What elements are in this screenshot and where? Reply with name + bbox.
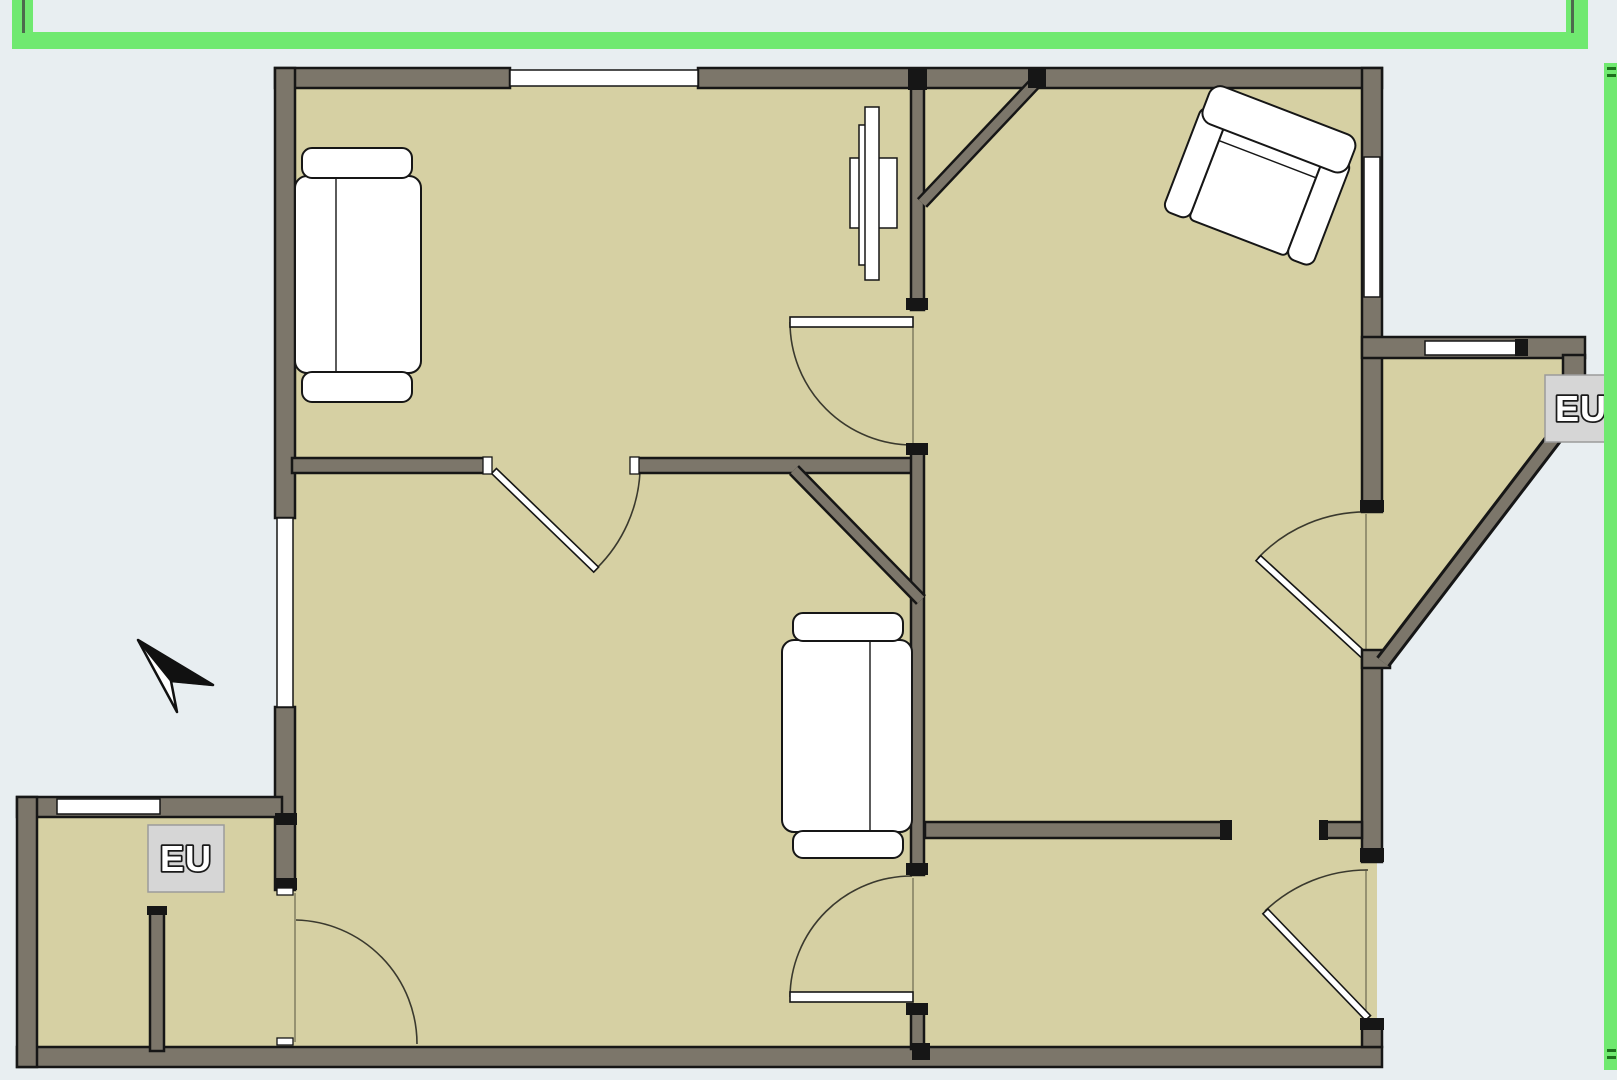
- wall-segment[interactable]: [275, 68, 510, 88]
- selection-top-bar[interactable]: [12, 32, 1588, 49]
- selection-right-bar[interactable]: [1604, 63, 1617, 1070]
- wall-segment[interactable]: [1323, 822, 1362, 838]
- door-leaf[interactable]: [790, 317, 913, 327]
- wall-segment[interactable]: [150, 911, 164, 1051]
- sofa-middle[interactable]: [782, 613, 912, 858]
- selection-line: [22, 0, 25, 33]
- selection-top-right-post[interactable]: [1566, 0, 1588, 33]
- wall-segment[interactable]: [292, 458, 488, 473]
- door-leaf[interactable]: [790, 992, 913, 1002]
- wall-segment[interactable]: [17, 797, 37, 1067]
- floorplan-canvas[interactable]: EU EU: [0, 0, 1617, 1080]
- window[interactable]: [1425, 341, 1517, 355]
- window[interactable]: [510, 70, 698, 86]
- eu-label-bay-text: EU: [1555, 388, 1607, 429]
- wall-segment[interactable]: [1362, 660, 1382, 862]
- window[interactable]: [277, 518, 293, 707]
- wall-segment[interactable]: [925, 822, 1228, 838]
- wall-segment[interactable]: [275, 68, 295, 518]
- wall-segment[interactable]: [17, 1047, 1382, 1067]
- window[interactable]: [1364, 157, 1380, 297]
- window[interactable]: [57, 799, 160, 814]
- sofa-top-left[interactable]: [295, 148, 421, 402]
- eu-label-entry-text: EU: [160, 838, 212, 879]
- eu-label-entry[interactable]: EU: [148, 825, 224, 892]
- selection-line: [1571, 0, 1574, 33]
- wall-segment[interactable]: [637, 458, 914, 473]
